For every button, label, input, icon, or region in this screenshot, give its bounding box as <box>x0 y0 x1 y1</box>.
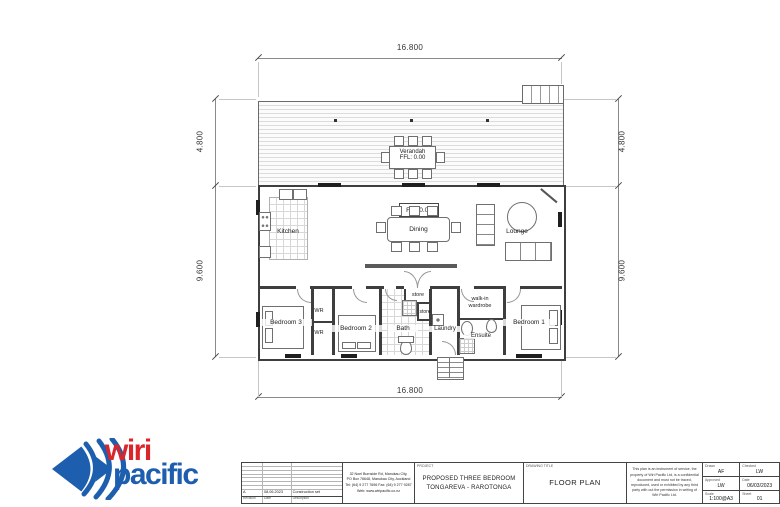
walkin-label-1: walk-in <box>462 296 498 302</box>
dim-bottom-label: 16.800 <box>258 386 562 395</box>
field-value: LW <box>703 483 739 489</box>
dim-top-label: 16.800 <box>258 43 562 52</box>
dim-right-upper-label: 4.800 <box>618 112 627 172</box>
field-drawn: Drawn AF <box>703 463 739 476</box>
verandah-steps <box>522 85 564 104</box>
toilet-tank <box>398 336 414 343</box>
dining-chair <box>391 242 402 252</box>
verandah-chair <box>422 169 432 179</box>
wall-segment <box>457 318 505 320</box>
field-value: AF <box>703 469 739 475</box>
verandah-chair <box>394 136 404 146</box>
dim-ext <box>219 99 256 100</box>
laundry-label: Laundry <box>429 326 461 332</box>
dim-left-lower-label: 9.600 <box>196 241 205 301</box>
verandah-post <box>486 119 489 122</box>
address-line: Web: www.wiripacific.co.nz <box>343 489 414 495</box>
dim-tick <box>212 353 219 360</box>
dining-chair <box>409 242 420 252</box>
stairs-rail <box>449 357 450 378</box>
dining-chair <box>376 222 386 233</box>
revision-header: Description <box>292 497 342 503</box>
dim-ext <box>219 357 256 358</box>
pillow <box>357 342 371 349</box>
dim-left-line <box>215 99 216 357</box>
toilet <box>486 319 497 333</box>
wr-top-label: WR <box>308 308 330 314</box>
field-scale: Scale 1:100@A3 <box>703 490 739 503</box>
project-name-line2: TONGAREVA - RAROTONGA <box>415 484 523 493</box>
disclaimer: This plan is an instrument of service, t… <box>627 463 703 503</box>
dim-ext <box>564 186 616 187</box>
dim-ext <box>258 361 259 397</box>
dim-ext <box>561 62 562 84</box>
washing-machine <box>432 314 444 326</box>
dining-chair <box>451 222 461 233</box>
logo: wiri pacific <box>50 436 250 502</box>
drawing-title-section: DRAWING TITLE FLOOR PLAN <box>524 463 627 503</box>
wall-segment <box>311 321 334 323</box>
vanity <box>402 300 417 316</box>
pillow <box>265 328 273 343</box>
ensuite-label: Ensuite <box>464 333 498 339</box>
half-wall <box>365 264 457 268</box>
fridge <box>259 246 271 258</box>
verandah-chair <box>422 136 432 146</box>
dim-ext <box>561 361 562 397</box>
shower <box>459 338 475 354</box>
verandah-table: Verandah FFL: 0.00 <box>389 146 436 169</box>
wr-bottom-label: WR <box>308 330 330 336</box>
logo-word-pacific: pacific <box>113 458 198 492</box>
dining-table: Dining <box>387 217 450 242</box>
dim-bottom-line <box>258 397 562 398</box>
title-fields: Drawn AF Checked LW Approved LW Date 06/… <box>703 463 779 503</box>
dim-right-lower-label: 9.600 <box>618 241 627 301</box>
window <box>341 354 357 358</box>
dim-tick <box>558 54 565 61</box>
dim-left-upper-label: 4.800 <box>196 112 205 172</box>
field-value: 1:100@A3 <box>703 496 739 502</box>
verandah-chair <box>408 169 418 179</box>
field-sheet: Sheet 01 <box>739 490 779 503</box>
walkin-label-2: wardrobe <box>462 303 498 309</box>
drawing-title-header: DRAWING TITLE <box>526 464 553 468</box>
revision-header-row: Revision Date Description <box>242 496 342 503</box>
project-header: PROJECT <box>417 464 433 468</box>
title-block: A 08.06.2023 Construction set Revision D… <box>241 462 780 504</box>
pillow <box>342 342 356 349</box>
store-entry-label: store <box>406 292 430 298</box>
dining-chair <box>391 206 402 216</box>
kitchen-label: Kitchen <box>266 228 310 235</box>
verandah-chair <box>394 169 404 179</box>
field-date: Date 06/03/2023 <box>739 476 779 489</box>
field-label: Drawn <box>705 464 715 468</box>
field-value: LW <box>740 469 779 475</box>
revision-table: A 08.06.2023 Construction set Revision D… <box>242 463 343 503</box>
sofa <box>505 242 552 261</box>
bath-label: Bath <box>388 325 418 332</box>
sliding-door <box>402 183 425 187</box>
dining-chair <box>427 206 438 216</box>
kitchen-sink <box>279 189 293 200</box>
pillow <box>549 328 558 344</box>
bedroom3-label: Bedroom 3 <box>260 319 312 326</box>
verandah-chair <box>408 136 418 146</box>
sliding-door <box>318 183 341 187</box>
dim-ext <box>258 62 259 97</box>
field-value: 06/03/2023 <box>740 483 779 489</box>
field-value: 01 <box>740 496 779 502</box>
store-hall-label: store <box>416 309 434 315</box>
disclaimer-text: This plan is an instrument of service, t… <box>627 467 702 498</box>
wall-segment <box>379 289 382 355</box>
verandah-chair <box>436 152 445 163</box>
project-section: PROJECT PROPOSED THREE BEDROOM TONGAREVA… <box>415 463 524 503</box>
stairs <box>437 357 464 380</box>
verandah-post <box>410 119 413 122</box>
sliding-door <box>477 183 500 187</box>
dim-tick <box>615 353 622 360</box>
window <box>516 354 542 358</box>
dim-ext <box>564 99 616 100</box>
dining-chair <box>427 242 438 252</box>
dining-label: Dining <box>409 226 427 233</box>
bedroom2-label: Bedroom 2 <box>330 325 382 332</box>
field-checked: Checked LW <box>739 463 779 476</box>
revision-header: Date <box>263 497 292 503</box>
company-address: 32 Noel Burnside Rd, Manukau City, PO Bo… <box>343 463 415 503</box>
project-name-line1: PROPOSED THREE BEDROOM <box>415 475 523 484</box>
verandah-post <box>334 119 337 122</box>
revision-header: Revision <box>242 497 263 503</box>
dim-top-line <box>258 58 562 59</box>
verandah-ffl-label: FFL: 0.00 <box>390 155 435 161</box>
bedroom1-label: Bedroom 1 <box>503 319 555 326</box>
dim-ext <box>564 357 616 358</box>
field-approved: Approved LW <box>703 476 739 489</box>
window <box>285 354 301 358</box>
window <box>558 212 562 227</box>
kitchen-sink <box>293 189 307 200</box>
drawing-title-value: FLOOR PLAN <box>524 478 626 487</box>
lounge-label: Lounge <box>495 228 539 235</box>
dining-chair <box>409 206 420 216</box>
dim-ext <box>219 186 256 187</box>
shelf-unit <box>476 204 495 246</box>
revision-row: A 08.06.2023 Construction set <box>242 489 342 496</box>
field-label: Checked <box>742 464 756 468</box>
